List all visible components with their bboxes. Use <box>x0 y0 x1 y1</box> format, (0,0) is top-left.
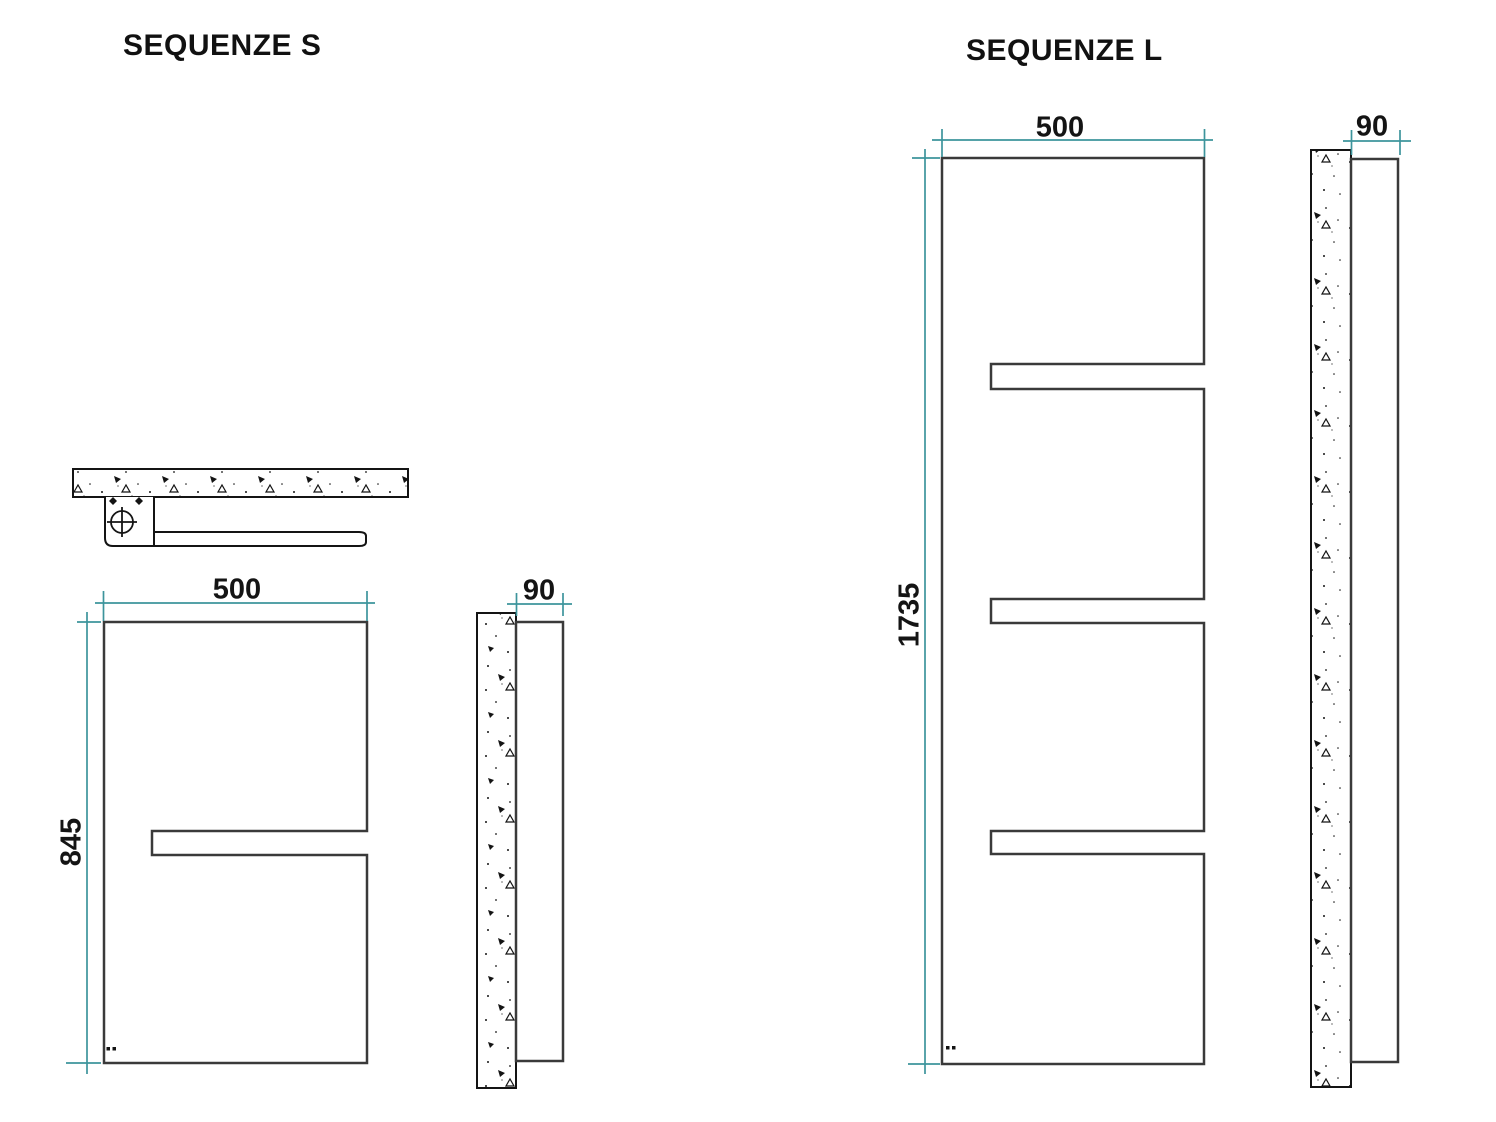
front-outline-l <box>942 158 1204 1064</box>
figure-title-sequenze-s: SEQUENZE S <box>123 29 321 63</box>
front-view-s <box>104 622 367 1063</box>
front-outline-s <box>104 622 367 1063</box>
dim-label-width-l: 500 <box>1036 112 1084 145</box>
side-panel-s <box>516 622 563 1061</box>
dim-label-depth-l: 90 <box>1356 111 1388 144</box>
side-view-s <box>477 613 563 1088</box>
wall-section-side-l <box>1311 150 1351 1087</box>
wall-section-plan <box>73 469 408 497</box>
plan-detail-view-s <box>73 469 408 546</box>
wall-section-side-s <box>477 613 516 1088</box>
figure-title-sequenze-l: SEQUENZE L <box>966 34 1163 68</box>
side-view-l <box>1311 150 1398 1087</box>
dim-label-height-l: 1735 <box>894 583 927 648</box>
technical-drawing-canvas: SEQUENZE S SEQUENZE L 500 845 90 500 173… <box>0 0 1496 1122</box>
dim-label-depth-s: 90 <box>523 575 555 608</box>
dim-label-height-s: 845 <box>56 818 89 866</box>
dim-label-width-s: 500 <box>213 574 261 607</box>
radiator-panel-plan <box>154 532 366 546</box>
side-panel-l <box>1351 159 1398 1062</box>
front-view-l <box>942 158 1204 1064</box>
drawing-linework <box>0 0 1496 1122</box>
